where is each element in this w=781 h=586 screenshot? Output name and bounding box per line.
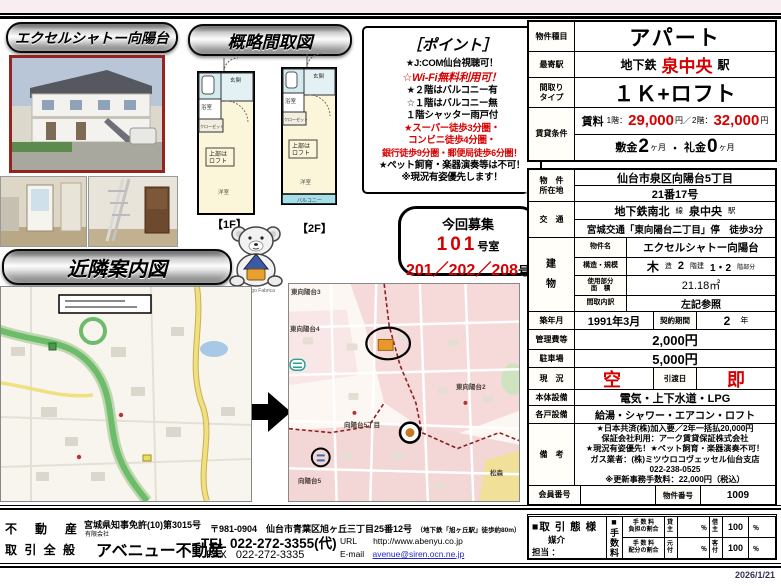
footer-biz-type-1: 不 動 産 — [5, 520, 80, 537]
fp1-closet-label: クローゼット — [200, 123, 224, 129]
access-line-word: 線 — [676, 205, 684, 216]
access-line-name: 地下鉄南北 — [615, 203, 670, 219]
interior-photo-2 — [88, 176, 178, 247]
notes-line: ガス業者：(株)ミツウロコヴェッセル仙台支店 — [590, 455, 759, 465]
member-number-value — [581, 486, 655, 504]
terms-label: 賃貸条件 — [529, 108, 575, 160]
rent-line: 賃料 1階： 29,000 円／ 2階： 32,000 円 — [575, 108, 775, 135]
map-arrow-tail — [252, 404, 268, 420]
wide-area-map — [0, 286, 252, 502]
property-table-main: 物 件 所在地 仙台市泉区向陽台5丁目 21番17号 交 通 地下鉄南北 線 泉… — [527, 168, 777, 506]
parking-label: 駐車場 — [529, 350, 575, 367]
fee-lessor-label: 貸主 — [665, 517, 678, 537]
fee-burden-label-2: 負担の割合 — [628, 527, 658, 534]
fee-listing-pct: ％ — [701, 544, 707, 553]
station-line-suf: 駅 — [718, 56, 730, 73]
point-line: ★２階はバルコニー有 — [364, 85, 540, 98]
points-title: ［ポイント］ — [364, 34, 540, 55]
bukken-number-label: 物件番号 — [655, 486, 701, 504]
row-management-fee: 管理費等 2,000円 — [529, 330, 775, 350]
map-label-koyodai5: 向陽台5 — [298, 475, 321, 485]
footer-rule-thick — [0, 508, 781, 511]
keymoney-label: 礼金 — [684, 139, 706, 155]
row-numbers: 会員番号 物件番号 1009 — [529, 486, 775, 504]
point-line: ☆Wi-Fi無料利用可！ — [364, 71, 540, 86]
status-value: 空 — [575, 368, 653, 389]
deal-staff-label: 担当 ： — [532, 546, 606, 558]
address-label-1: 物 件 — [540, 176, 564, 186]
structure-word-3: 階部分 — [737, 262, 755, 271]
rent-f2-value: 32,000 — [713, 112, 759, 129]
fee-finding-label: 客付 — [710, 538, 723, 558]
floorplan-2f: 玄関 浴室 クローゼット 上部は ロフト 洋室 バルコニー — [280, 52, 338, 216]
address-line-2: 21番17号 — [575, 186, 775, 201]
contract-value: 2 — [724, 314, 731, 328]
built-label: 築年月 — [529, 312, 575, 329]
deposit-unit: ヶ月 — [650, 142, 666, 153]
structure-word-1: 造 — [665, 261, 672, 271]
access-label: 交 通 — [529, 202, 575, 237]
row-status: 現 況 空 引渡日 即 — [529, 368, 775, 390]
fee-lessee-pct: ％ — [749, 517, 763, 537]
parking-value: 5,000円 — [575, 350, 775, 367]
flyer-page: エクセルシャトー向陽台 — [0, 0, 781, 586]
map-label-koyodai5chome: 向陽台5丁目 — [344, 419, 380, 429]
property-type-label: 物件種目 — [529, 22, 575, 51]
teddy-bear-mascot — [226, 224, 286, 288]
property-title-banner: エクセルシャトー向陽台 — [6, 22, 178, 53]
map-label-higashikoyodai2: 東向陽台2 — [456, 381, 486, 391]
status-label: 現 況 — [529, 368, 575, 389]
management-fee-label: 管理費等 — [529, 330, 575, 349]
deposit-line: 敷金 2 ヶ月 ・ 礼金 0 ヶ月 — [575, 135, 775, 161]
fee-lessee-label: 借主 — [710, 517, 723, 537]
footer-biz-type-2: 取 引 全 般 — [5, 541, 77, 558]
points-box: ［ポイント］ ★J:COM仙台視聴可！ ☆Wi-Fi無料利用可！ ★２階はバルコ… — [362, 26, 542, 194]
handover-label: 引渡日 — [653, 368, 697, 389]
fp1-room-label: 洋室 — [218, 188, 230, 196]
keymoney-unit: ヶ月 — [719, 142, 735, 153]
area-value: 21.18㎡ — [627, 276, 775, 295]
footer-fax: FAX 022-272-3335 — [206, 549, 304, 561]
notes-line: 022-238-0525 — [650, 465, 701, 475]
footer-url-label: URL — [340, 536, 357, 546]
layout-label-1: 間取り — [540, 83, 564, 93]
footer-fax-number: 022-272-3335 — [236, 549, 305, 561]
deal-style-value: 媒介 — [548, 534, 606, 546]
structure-floors: 1・2 — [710, 259, 731, 274]
fee-split-label-1: 手 数 料 — [633, 541, 654, 548]
recruit-box: 今回募集 101号室 201／202／208号 — [398, 206, 538, 276]
deal-style-heading: ■取 引 態 様 — [532, 519, 606, 534]
notes-line: 保証会社利用：アーク賃貸保証株式会社 — [602, 434, 749, 444]
floorplan-1f: 玄関 浴室 クローゼット 上部は ロフト 洋室 — [196, 56, 256, 216]
fee-listing-label: 元付 — [665, 538, 678, 558]
map-label-higashikoyodai4: 東向陽台4 — [290, 323, 320, 333]
notes-line: ★日本共済(株)加入要／2年一括払20,000円 — [596, 424, 753, 434]
point-line: ☆１階はバルコニー無 — [364, 98, 540, 111]
deal-box: ■取 引 態 様 媒介 担当 ： ■手数料 手 数 料 負担の割合 貸主 ％ 借… — [527, 514, 777, 560]
handover-value: 即 — [697, 368, 775, 389]
row-layout: 間取り タイプ １Ｋ+ロフト — [529, 78, 775, 108]
fp2-loft-label-1: 上部は — [292, 142, 310, 150]
interior-photo-1-art — [1, 177, 86, 246]
row-base-equipment: 本体設備 電気・上下水道・LPG — [529, 390, 775, 406]
footer-email-link[interactable]: avenue@siren.ocn.ne.jp — [372, 549, 464, 559]
rent-f1-value: 29,000 — [628, 112, 674, 129]
madori-row: 間取内訳 左記参照 — [575, 296, 775, 311]
keymoney-months: 0 — [707, 136, 718, 158]
point-line: ※現況有姿優先します！ — [364, 172, 540, 185]
base-equipment-label: 本体設備 — [529, 390, 575, 405]
row-station: 最寄駅 地下鉄 泉中央 駅 — [529, 52, 775, 78]
notes-line: ★現況有姿優先！★ペット飼育・楽器演奏不可！ — [586, 444, 764, 454]
map-title: 近隣案内図 — [67, 253, 167, 282]
structure-stories: 2 — [678, 260, 684, 272]
fee-split-label-2: 配分の割合 — [628, 548, 658, 555]
access-station-name: 泉中央 — [689, 203, 722, 219]
fee-lessor-pct: ％ — [701, 523, 707, 532]
rent-f1-suffix: 円／ — [675, 115, 691, 126]
notes-label: 備 考 — [529, 424, 575, 485]
station-name: 泉中央 — [662, 52, 713, 77]
fee-finding-value: 100 — [723, 538, 749, 558]
fee-burden-row: 手 数 料 負担の割合 貸主 ％ 借主 100 ％ — [623, 517, 775, 538]
member-number-label: 会員番号 — [529, 486, 581, 504]
top-rule-thick — [0, 16, 781, 19]
fp1-bath-label: 浴室 — [201, 103, 213, 111]
fp2-entrance-label: 玄関 — [313, 72, 325, 80]
layout-value: １Ｋ+ロフト — [575, 78, 775, 107]
fp2-bath-label: 浴室 — [285, 97, 297, 105]
fee-burden-label-1: 手 数 料 — [633, 520, 654, 527]
building-label-1: 建 — [546, 259, 557, 271]
rent-f1-pre: 1階： — [607, 115, 627, 126]
building-name-value: エクセルシャトー向陽台 — [627, 238, 775, 257]
recruit-rooms-2xx: 201／202／208 — [406, 262, 518, 279]
map-label-higashikoyodai3: 東向陽台3 — [291, 286, 321, 296]
deal-fee-table: 手 数 料 負担の割合 貸主 ％ 借主 100 ％ 手 数 料 配分の割合 元付… — [623, 517, 775, 558]
fee-split-row: 手 数 料 配分の割合 元付 ％ 客付 100 ％ — [623, 538, 775, 558]
fp2-balcony-label: バルコニー — [297, 198, 322, 204]
contract-label: 契約期間 — [653, 312, 697, 329]
deposit-key-separator: ・ — [670, 140, 680, 155]
property-table-top: 物件種目 アパート 最寄駅 地下鉄 泉中央 駅 間取り タイプ １Ｋ+ロフト 賃… — [527, 20, 777, 162]
access-line-2: 宮城交通「東向陽台二丁目」停 徒歩3分 — [575, 220, 775, 237]
management-fee-value: 2,000円 — [575, 330, 775, 349]
row-property-type: 物件種目 アパート — [529, 22, 775, 52]
fp1-loft-label-2: ロフト — [209, 158, 227, 165]
rent-f2-suffix: 円 — [760, 115, 768, 126]
unit-equipment-label: 各戸設備 — [529, 406, 575, 423]
floorplan-2f-label: 【2F】 — [297, 220, 332, 236]
footer-url: http://www.abenyu.co.jp — [373, 536, 463, 546]
point-line: ★ペット飼育・楽器演奏等は不可！ — [364, 160, 540, 173]
address-line-1: 仙台市泉区向陽台5丁目 — [575, 170, 775, 186]
point-line: １階シャッター雨戸付 — [364, 110, 540, 123]
deal-fee-heading: ■手数料 — [607, 517, 623, 558]
fee-lessee-value: 100 — [723, 517, 749, 537]
layout-label-2: タイプ — [540, 93, 564, 103]
row-access: 交 通 地下鉄南北 線 泉中央 駅 宮城交通「東向陽台二丁目」停 徒歩3分 — [529, 202, 775, 238]
point-line: コンビニ徒歩4分圏・ — [364, 135, 540, 148]
building-name-row: 物件名 エクセルシャトー向陽台 — [575, 238, 775, 258]
property-title: エクセルシャトー向陽台 — [15, 28, 169, 48]
point-line: ★スーパー徒歩3分圏・ — [364, 123, 540, 136]
area-label-2: 面 積 — [591, 285, 611, 292]
top-rule-thin — [0, 13, 781, 15]
detail-map: 東向陽台3 東向陽台4 東向陽台2 向陽台5丁目 向陽台5 松森 — [288, 283, 520, 502]
station-line-pre: 地下鉄 — [620, 56, 656, 73]
structure-row: 構造・規模 木 造 2 階建 1・2 階部分 — [575, 258, 775, 276]
top-strip — [0, 0, 781, 13]
row-address: 物 件 所在地 仙台市泉区向陽台5丁目 21番17号 — [529, 170, 775, 202]
area-row: 使用部分 面 積 21.18㎡ — [575, 276, 775, 296]
map-banner: 近隣案内図 — [2, 249, 232, 285]
interior-photo-2-art — [89, 177, 177, 246]
footer-rule-thin — [0, 505, 781, 506]
bukken-number-value: 1009 — [701, 486, 775, 504]
structure-label: 構造・規模 — [575, 258, 627, 275]
interior-photo-1 — [0, 176, 87, 247]
print-date: 2026/1/21 — [735, 570, 775, 580]
map-label-matsumori: 松森 — [490, 467, 503, 477]
fp1-entrance-label: 玄関 — [230, 76, 242, 84]
bottom-rule-thin — [0, 563, 781, 564]
access-station-word: 駅 — [728, 205, 736, 216]
unit-equipment-value: 給湯・シャワー・エアコン・ロフト — [575, 406, 775, 423]
footer-email-label: E-mail — [340, 549, 364, 559]
fp2-closet-label: クローゼット — [284, 116, 308, 122]
fp1-loft-label-1: 上部は — [209, 150, 227, 158]
recruit-heading: 今回募集 — [401, 214, 535, 233]
point-line: 銀行徒歩9分圏・郵便局徒歩6分圏！ — [364, 148, 540, 160]
row-building: 建 物 物件名 エクセルシャトー向陽台 構造・規模 木 造 2 階建 1・2 — [529, 238, 775, 312]
rent-f2-pre: 2階： — [692, 115, 712, 126]
fee-finding-pct: ％ — [749, 538, 763, 558]
footer-url-row: URL http://www.abenyu.co.jp — [340, 536, 463, 546]
fp2-room-label: 洋室 — [300, 178, 312, 186]
bottom-rule-thick — [0, 566, 781, 569]
row-notes: 備 考 ★日本共済(株)加入要／2年一括払20,000円 保証会社利用：アーク賃… — [529, 424, 775, 486]
deposit-months: 2 — [638, 136, 649, 158]
contract-unit: 年 — [740, 315, 748, 326]
footer-email-row: E-mail avenue@siren.ocn.ne.jp — [340, 549, 464, 559]
deposit-label: 敷金 — [615, 139, 637, 155]
structure-word-2: 階建 — [690, 261, 704, 271]
detail-map-art — [288, 283, 520, 502]
fee-listing-value: ％ — [678, 538, 710, 558]
recruit-room-101-suffix: 号室 — [477, 241, 499, 253]
footer-address-note: （地下鉄「旭ヶ丘駅」徒歩約80m） — [417, 527, 521, 534]
built-value: 1991年3月 — [575, 312, 653, 329]
building-name-label: 物件名 — [575, 238, 627, 257]
madori-value: 左記参照 — [627, 296, 775, 311]
footer-fax-label: FAX — [206, 549, 227, 561]
address-label-2: 所在地 — [540, 186, 564, 196]
floorplan-title: 概略間取図 — [228, 28, 313, 53]
fee-lessor-value: ％ — [678, 517, 710, 537]
row-terms: 賃貸条件 賃料 1階： 29,000 円／ 2階： 32,000 円 敷金 2 … — [529, 108, 775, 160]
recruit-room-101: 101 — [437, 234, 478, 255]
building-photo-art — [12, 58, 162, 170]
building-label-2: 物 — [546, 279, 557, 291]
structure-material: 木 — [647, 258, 659, 275]
station-label: 最寄駅 — [529, 52, 575, 77]
madori-label: 間取内訳 — [575, 296, 627, 311]
fp2-loft-label-2: ロフト — [292, 150, 310, 157]
row-built: 築年月 1991年3月 契約期間 2 年 — [529, 312, 775, 330]
row-unit-equipment: 各戸設備 給湯・シャワー・エアコン・ロフト — [529, 406, 775, 424]
notes-line: ※更新事務手数料：22,000円（税込） — [605, 475, 744, 485]
base-equipment-value: 電気・上下水道・LPG — [575, 390, 775, 405]
building-photo — [9, 55, 165, 173]
rent-label: 賃料 — [582, 113, 604, 129]
point-line: ★J:COM仙台視聴可！ — [364, 58, 540, 71]
property-type-value: アパート — [575, 22, 775, 51]
access-line-1: 地下鉄南北 線 泉中央 駅 — [575, 202, 775, 220]
